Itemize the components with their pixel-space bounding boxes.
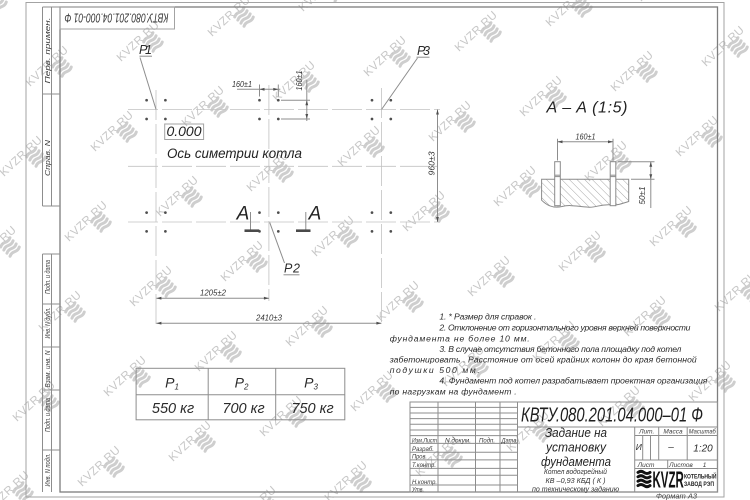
svg-text:P2: P2 bbox=[235, 375, 249, 392]
svg-text:1205±2: 1205±2 bbox=[200, 288, 226, 298]
svg-text:KVZR.RU: KVZR.RU bbox=[167, 419, 214, 464]
svg-text:Подп. и дата: Подп. и дата bbox=[43, 398, 52, 432]
svg-text:Перв. примен.: Перв. примен. bbox=[43, 18, 52, 84]
svg-text:KVZR.RU: KVZR.RU bbox=[674, 114, 721, 159]
svg-text:1. * Размер для справок .: 1. * Размер для справок . bbox=[439, 311, 536, 321]
svg-text:P1: P1 bbox=[139, 43, 152, 57]
svg-text:забетонировать . Расстояние о: забетонировать . Расстояние от осей край… bbox=[389, 354, 697, 364]
svg-text:KVZR.RU: KVZR.RU bbox=[492, 164, 539, 209]
svg-text:KVZR.RU: KVZR.RU bbox=[557, 229, 604, 274]
svg-text:Н.контр.: Н.контр. bbox=[412, 479, 437, 486]
svg-text:KVZR.RU: KVZR.RU bbox=[89, 109, 136, 154]
svg-text:Подп. и дата: Подп. и дата bbox=[43, 260, 52, 294]
svg-text:KVZR.RU: KVZR.RU bbox=[219, 239, 266, 284]
svg-text:550 кг: 550 кг bbox=[152, 401, 194, 417]
svg-text:KVZR.RU: KVZR.RU bbox=[362, 34, 409, 79]
svg-text:KVZR.RU: KVZR.RU bbox=[336, 124, 383, 169]
svg-text:Масштаб: Масштаб bbox=[689, 428, 716, 436]
svg-text:по техническому заданию: по техническому заданию bbox=[532, 486, 620, 494]
svg-text:P3: P3 bbox=[304, 375, 318, 392]
svg-text:Пров.: Пров. bbox=[412, 454, 427, 461]
svg-text:КОТЕЛЬНЫЙ: КОТЕЛЬНЫЙ bbox=[684, 473, 717, 481]
svg-text:Подп.: Подп. bbox=[479, 437, 495, 445]
svg-text:Формат А3: Формат А3 bbox=[656, 492, 698, 500]
svg-text:KVZR.RU: KVZR.RU bbox=[63, 199, 110, 244]
svg-text:Инв. N подл.: Инв. N подл. bbox=[43, 454, 52, 487]
svg-text:–: – bbox=[667, 442, 674, 453]
svg-text:установку: установку bbox=[545, 439, 607, 454]
svg-text:KVZR.RU: KVZR.RU bbox=[648, 204, 695, 249]
svg-text:A – A (1:5): A – A (1:5) bbox=[546, 100, 628, 117]
svg-text:160±1: 160±1 bbox=[576, 132, 596, 142]
svg-text:A: A bbox=[308, 204, 322, 225]
svg-text:0.000: 0.000 bbox=[166, 123, 201, 139]
svg-text:KVZR.RU: KVZR.RU bbox=[453, 9, 500, 54]
svg-text:КВТУ.080.201.04.000-01 Ф: КВТУ.080.201.04.000-01 Ф bbox=[65, 11, 169, 26]
svg-text:KVZR.RU: KVZR.RU bbox=[154, 174, 201, 219]
svg-text:Дата: Дата bbox=[501, 438, 517, 445]
svg-text:Котел водогрейный: Котел водогрейный bbox=[544, 468, 607, 476]
svg-text:2. Отклонение от горизонтальн: 2. Отклонение от горизонтального уровня … bbox=[438, 322, 690, 332]
svg-text:KVZR.RU: KVZR.RU bbox=[713, 269, 750, 314]
svg-text:KVZR.RU: KVZR.RU bbox=[401, 189, 448, 234]
svg-text:KVZR.RU: KVZR.RU bbox=[102, 354, 149, 399]
svg-text:P1: P1 bbox=[165, 375, 179, 392]
svg-text:Изм.Лист: Изм.Лист bbox=[412, 438, 437, 445]
svg-text:KVZR.RU: KVZR.RU bbox=[700, 24, 747, 69]
svg-text:ЗАВОД РЭП: ЗАВОД РЭП bbox=[684, 482, 714, 488]
svg-text:Инв. N дубл.: Инв. N дубл. bbox=[43, 308, 52, 339]
svg-text:3. В случае отсутствия бетонн: 3. В случае отсутствия бетонного пола пл… bbox=[439, 344, 681, 354]
svg-text:50±1: 50±1 bbox=[637, 186, 647, 204]
svg-text:подушки 500 мм.: подушки 500 мм. bbox=[390, 365, 480, 375]
svg-text:750 кг: 750 кг bbox=[291, 401, 333, 417]
svg-text:160±1: 160±1 bbox=[294, 70, 304, 90]
svg-text:KVZR.RU: KVZR.RU bbox=[609, 49, 656, 94]
svg-text:фундамента: фундамента bbox=[541, 454, 611, 469]
svg-text:P2: P2 bbox=[284, 262, 300, 276]
svg-text:И: И bbox=[636, 442, 643, 452]
svg-text:2410±3: 2410±3 bbox=[255, 313, 282, 323]
svg-text:KVZR.RU: KVZR.RU bbox=[466, 254, 513, 299]
svg-text:Ось симетрии котла: Ось симетрии котла bbox=[167, 146, 302, 161]
svg-text:Лит.: Лит. bbox=[638, 429, 654, 436]
svg-text:700 кг: 700 кг bbox=[222, 401, 264, 417]
svg-text:фундамента не более 10 мм.: фундамента не более 10 мм. bbox=[390, 333, 530, 343]
svg-text:Задание на: Задание на bbox=[545, 425, 607, 440]
svg-text:1:20: 1:20 bbox=[693, 444, 713, 455]
svg-text:Масса: Масса bbox=[663, 429, 683, 436]
svg-text:Разраб.: Разраб. bbox=[412, 445, 434, 453]
svg-text:Справ. N: Справ. N bbox=[43, 139, 52, 176]
svg-text:KVZR.RU: KVZR.RU bbox=[128, 264, 175, 309]
svg-text:Утв.: Утв. bbox=[411, 486, 424, 493]
svg-text:KVZR.RU: KVZR.RU bbox=[76, 444, 123, 489]
svg-text:1: 1 bbox=[703, 462, 707, 469]
svg-text:KVZR.RU: KVZR.RU bbox=[284, 304, 331, 349]
svg-text:KVZR.RU: KVZR.RU bbox=[622, 294, 669, 339]
svg-text:KVZR: KVZR bbox=[653, 467, 684, 492]
svg-text:Взам. инв. N: Взам. инв. N bbox=[43, 350, 52, 387]
svg-text:Т.контр.: Т.контр. bbox=[412, 462, 436, 469]
svg-text:KVZR.RU: KVZR.RU bbox=[193, 329, 240, 374]
svg-text:160±1: 160±1 bbox=[232, 79, 252, 89]
svg-text:N докум.: N докум. bbox=[445, 437, 471, 445]
svg-text:по нагрузкам на фундамент .: по нагрузкам на фундамент . bbox=[390, 386, 517, 396]
svg-text:960±3: 960±3 bbox=[427, 151, 437, 175]
svg-text:КВТУ.080.201.04.000–01 Ф: КВТУ.080.201.04.000–01 Ф bbox=[521, 405, 703, 427]
svg-text:КВ –0,93 КБД ( К ): КВ –0,93 КБД ( К ) bbox=[546, 478, 606, 485]
svg-text:A: A bbox=[236, 204, 250, 225]
svg-text:KVZR.RU: KVZR.RU bbox=[427, 99, 474, 144]
svg-text:P3: P3 bbox=[417, 44, 430, 58]
svg-text:KVZR.RU: KVZR.RU bbox=[375, 279, 422, 324]
svg-text:4. Фундамент под котел разраб: 4. Фундамент под котел разрабатывает про… bbox=[439, 375, 707, 385]
